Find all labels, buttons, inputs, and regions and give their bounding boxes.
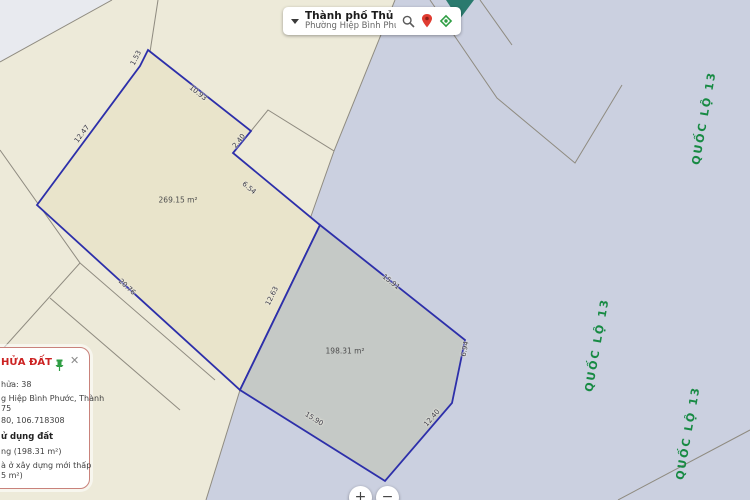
cadastral-map[interactable] [0, 0, 750, 500]
address-field: g Hiệp Bình Phước, Thành [1, 394, 104, 404]
pushpin-icon[interactable] [54, 356, 65, 375]
parcel-number-field: hửa: 38 [1, 380, 31, 390]
close-icon[interactable]: ✕ [70, 355, 79, 366]
chevron-down-icon[interactable] [291, 19, 299, 24]
parcel-info-panel: HỬA ĐẤT ✕ hửa: 38 g Hiệp Bình Phước, Thà… [0, 347, 90, 489]
location-pin-icon[interactable] [421, 14, 433, 28]
address-field-2: 75 [1, 404, 11, 414]
location-text: Thành phố Thủ Đức Phường Hiệp Bình Phước [305, 10, 396, 32]
ward-name: Phường Hiệp Bình Phước [305, 22, 396, 32]
coordinates-field: 80, 106.718308 [1, 416, 65, 426]
gps-locate-icon[interactable] [439, 14, 453, 28]
land-use-area-field: ng (198.31 m²) [1, 447, 61, 457]
panel-title: HỬA ĐẤT [1, 357, 52, 368]
planning-type-field: à ở xây dựng mới thấp [1, 461, 91, 471]
search-icon[interactable] [402, 15, 415, 28]
land-use-heading: ử dụng đất [1, 432, 53, 442]
planning-area-field: 5 m²) [1, 471, 23, 481]
map-viewer: 1.5310.9312.472.406.5420.7612.6315.916.9… [0, 0, 750, 500]
location-search-bar[interactable]: Thành phố Thủ Đức Phường Hiệp Bình Phước [283, 7, 461, 35]
